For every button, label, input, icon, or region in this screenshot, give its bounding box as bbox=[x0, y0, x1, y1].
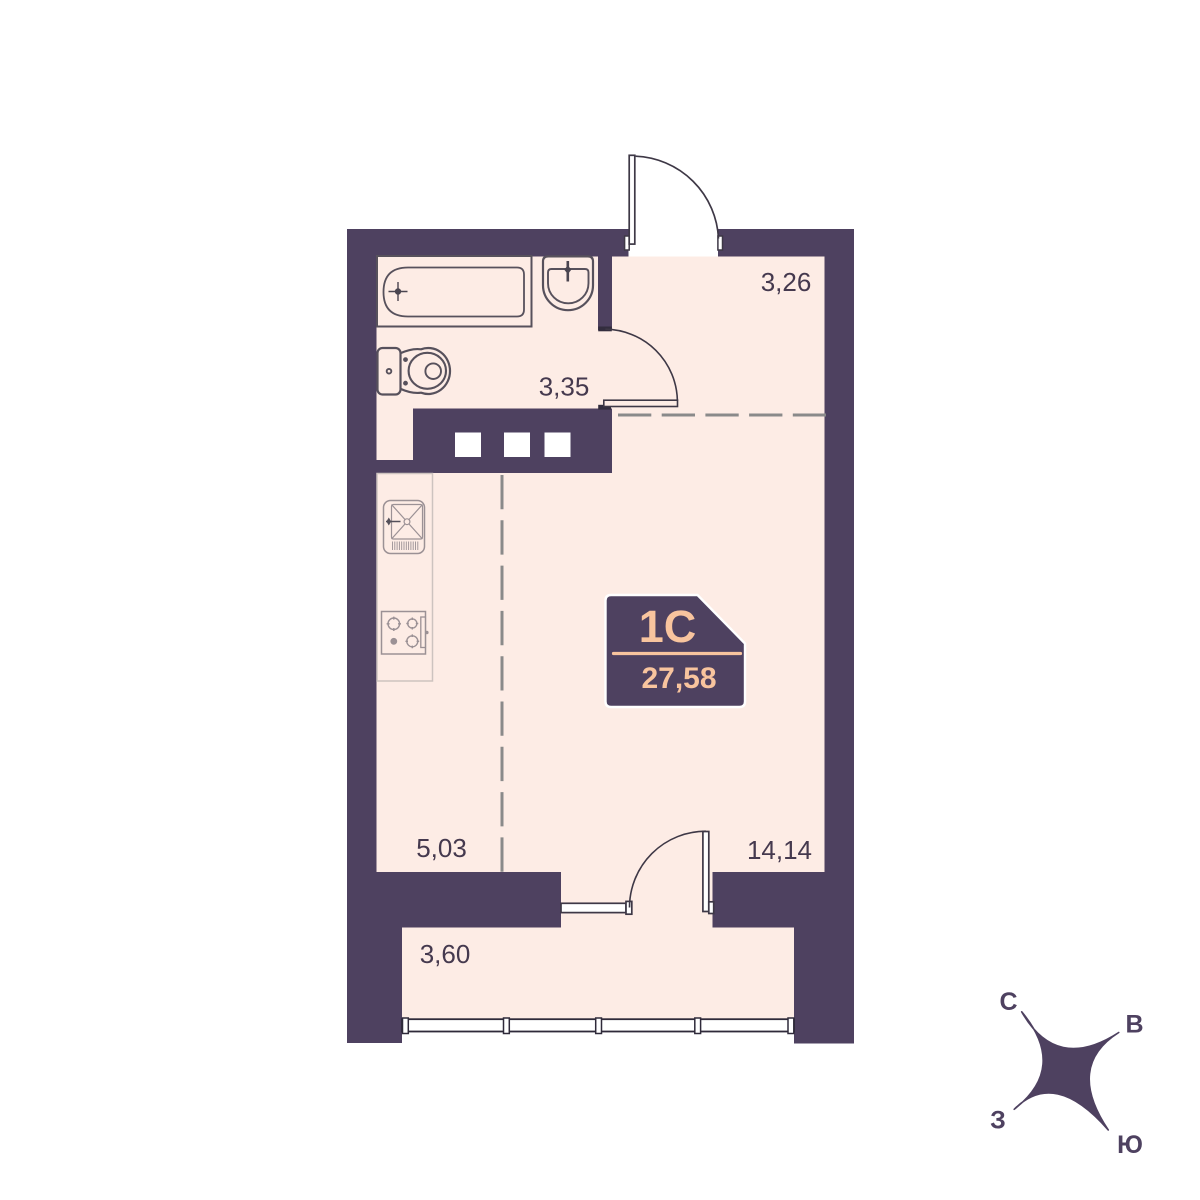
svg-text:27,58: 27,58 bbox=[641, 662, 716, 695]
svg-text:С: С bbox=[999, 988, 1017, 1016]
svg-text:3,26: 3,26 bbox=[761, 267, 812, 297]
svg-text:1С: 1С bbox=[639, 601, 697, 652]
svg-text:В: В bbox=[1125, 1011, 1143, 1039]
svg-text:З: З bbox=[990, 1107, 1006, 1135]
svg-text:Ю: Ю bbox=[1117, 1131, 1143, 1159]
svg-text:5,03: 5,03 bbox=[416, 833, 467, 863]
svg-text:3,35: 3,35 bbox=[539, 372, 590, 402]
svg-text:3,60: 3,60 bbox=[420, 939, 471, 969]
svg-text:14,14: 14,14 bbox=[747, 835, 812, 865]
